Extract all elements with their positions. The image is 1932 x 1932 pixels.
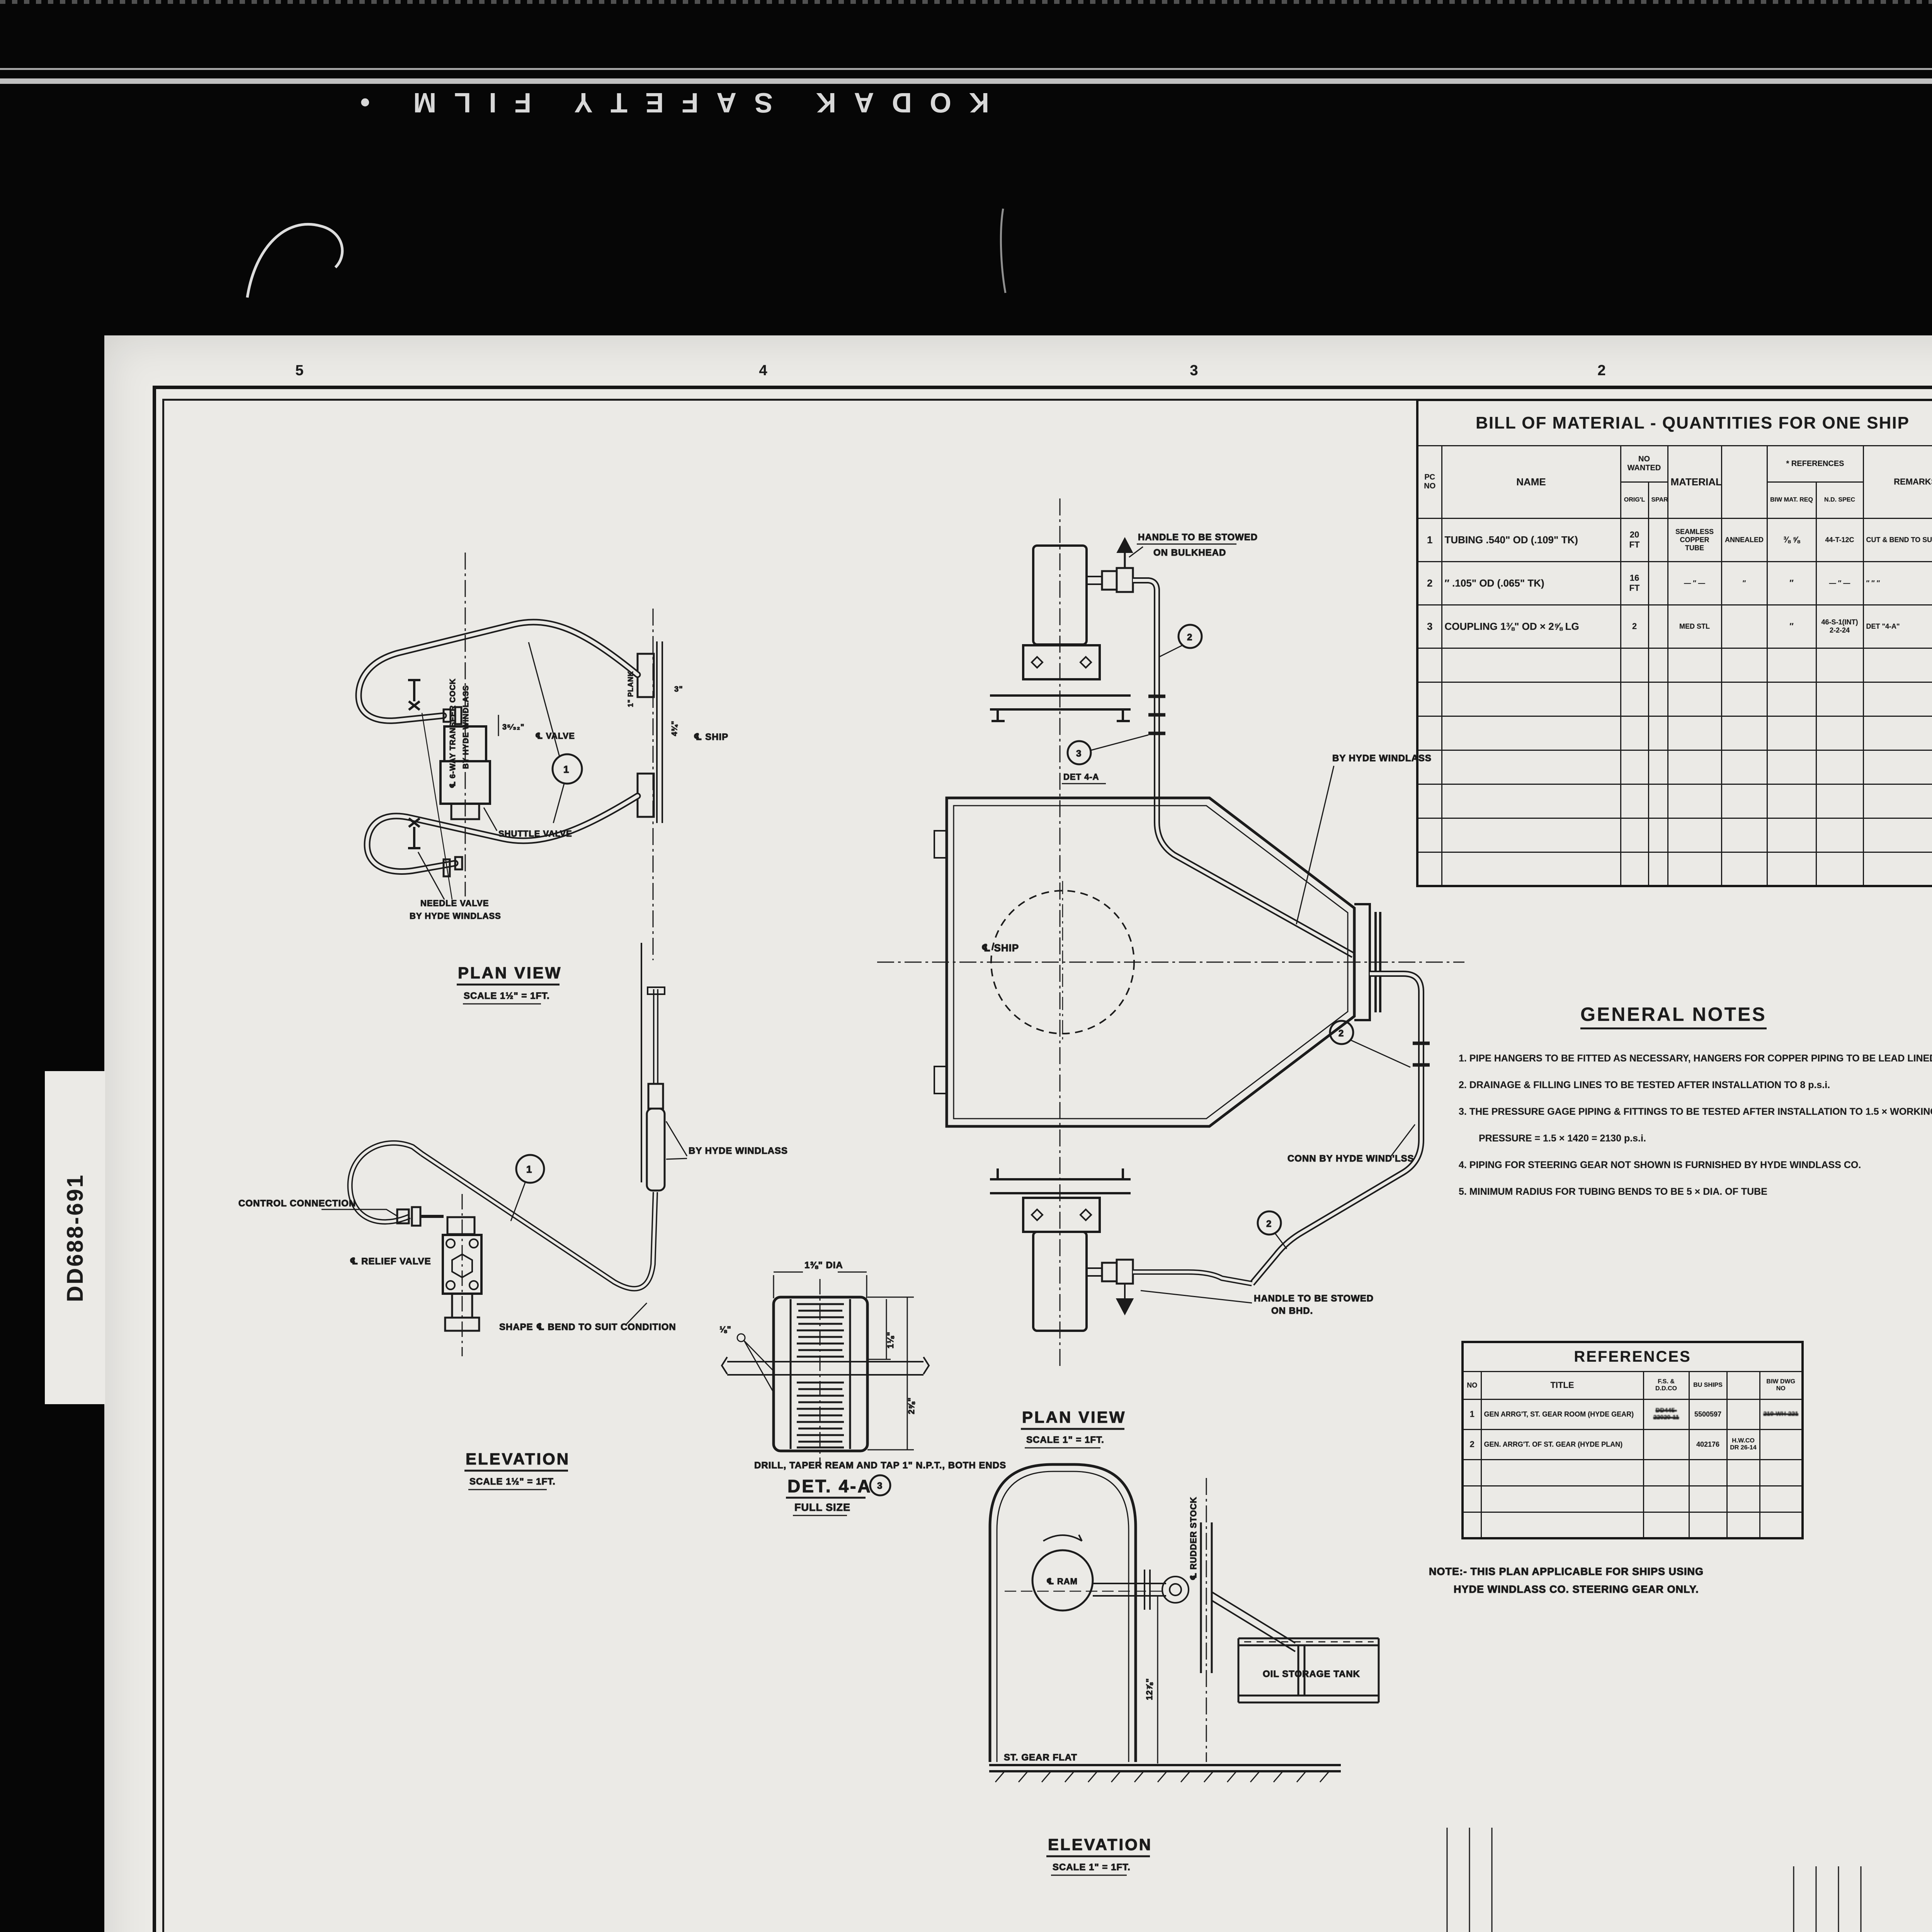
needle-valve-symbol	[408, 680, 420, 710]
ram-shaft	[1093, 1570, 1166, 1610]
conn-label: CONN BY HYDE WIND'LSS	[1287, 1153, 1414, 1164]
bottom-valve-body	[1117, 1260, 1133, 1284]
gage-tube-upper	[359, 622, 638, 721]
det-dim-eighth: ⅛"	[719, 1325, 731, 1334]
alteration-column-lines	[1403, 1828, 1861, 1932]
gage-tube-upper-core	[359, 622, 638, 721]
relief-valve-top	[447, 1217, 474, 1234]
gage-bulb	[647, 1109, 665, 1190]
leader	[666, 1121, 687, 1156]
valve-tube	[1133, 1272, 1252, 1284]
oil-tank-label: OIL STORAGE TANK	[1263, 1669, 1360, 1679]
transfer-cock-label2: BY HYDE WINDLASS	[462, 685, 470, 769]
control-fitting	[397, 1207, 420, 1226]
leader	[666, 1158, 687, 1159]
clamp-bolts	[1032, 657, 1091, 668]
needle-valve-label2: BY HYDE WINDLASS	[410, 911, 501, 921]
leader	[744, 1341, 773, 1391]
plan-view-center-title: PLAN VIEW	[1022, 1408, 1126, 1426]
callout-1: 1	[526, 1163, 532, 1175]
shuttle-valve-label: SHUTTLE VALVE	[498, 829, 572, 838]
leader	[1141, 1291, 1252, 1303]
ram-label: ℄ RAM	[1046, 1577, 1078, 1586]
upper-clamp	[1023, 645, 1100, 679]
callout-2: 2	[1266, 1219, 1272, 1229]
piping-drawing-layer: ℄ 6-WAY TRANSFER COCK BY HYDE WINDLASS 3…	[0, 0, 1932, 1932]
plan-view-center-scale: SCALE 1" = 1FT.	[1026, 1435, 1104, 1445]
relief-valve-label: ℄ RELIEF VALVE	[350, 1256, 431, 1267]
handle-label-bottom: HANDLE TO BE STOWED	[1254, 1293, 1374, 1304]
bolt-hole	[469, 1281, 478, 1289]
elevation-center-title: ELEVATION	[1048, 1835, 1152, 1854]
plan-view-scale: SCALE 1½" = 1FT.	[464, 991, 550, 1001]
applicability-note-2: HYDE WINDLASS CO. STEERING GEAR ONLY.	[1454, 1583, 1699, 1595]
leader	[1090, 735, 1148, 750]
pipe-break	[722, 1357, 929, 1374]
gear-housing-dome	[990, 1464, 1136, 1762]
leader	[626, 1303, 647, 1325]
lower-clamp	[1023, 1198, 1100, 1232]
film-scribble	[247, 224, 342, 298]
det-dim-2-5-8: 2⅝"	[906, 1397, 916, 1414]
dim-4-3-4: 4¾"	[670, 721, 679, 736]
valve-handle	[1117, 1284, 1133, 1314]
ship-centerline-label: ℄ SHIP	[694, 732, 728, 742]
film-scribble	[1001, 209, 1005, 293]
callout-1: 1	[563, 764, 569, 775]
top-valve-body	[1102, 571, 1117, 590]
link-joint-pin	[1170, 1584, 1181, 1595]
clamp-bolts	[1032, 1209, 1091, 1220]
center-tube-upper	[1133, 580, 1353, 955]
diagonal-tube	[422, 1154, 655, 1289]
handle-label-1: HANDLE TO BE STOWED	[1138, 532, 1258, 543]
leader	[1391, 1124, 1415, 1156]
dome-inner-line	[997, 1471, 1129, 1762]
elevation-scale: SCALE 1½" = 1FT.	[469, 1476, 556, 1487]
center-tube-upper-core	[1133, 580, 1353, 955]
callout-2: 2	[1187, 632, 1192, 643]
leader	[1296, 766, 1334, 924]
rotation-arrow	[1043, 1535, 1082, 1541]
det-drill-note: DRILL, TAPER REAM AND TAP 1" N.P.T., BOT…	[754, 1460, 1006, 1471]
leader	[1351, 1040, 1410, 1067]
det-dia-dim: 1⅜" DIA	[804, 1260, 843, 1270]
plank-label: 1" PLANK	[627, 671, 634, 707]
housing-tab	[934, 831, 947, 858]
needle-valve-label: NEEDLE VALVE	[420, 898, 489, 908]
bottom-valve-body	[1102, 1263, 1117, 1281]
dim-3-5-32: 3⁵⁄₃₂"	[502, 723, 524, 731]
plan-view-title: PLAN VIEW	[458, 964, 562, 982]
det-full-size: FULL SIZE	[794, 1502, 850, 1513]
valve-handle	[1117, 538, 1133, 553]
elevation-center-scale: SCALE 1" = 1FT.	[1053, 1862, 1131, 1872]
by-hyde-label: BY HYDE WINDLASS	[689, 1146, 788, 1156]
dim-3: 3"	[674, 685, 683, 694]
callout-3: 3	[877, 1481, 883, 1491]
control-connection-label: CONTROL CONNECTION	[238, 1198, 356, 1209]
valve-stem	[1087, 1268, 1102, 1276]
dim-12-7-8: 12⅞"	[1145, 1678, 1154, 1700]
pipe-coupling	[648, 1084, 663, 1109]
det-4a-ref: DET 4-A	[1063, 772, 1099, 782]
bolt-hole	[469, 1239, 478, 1248]
top-valve-body	[1117, 568, 1133, 592]
handle-label-bottom2: ON BHD.	[1271, 1306, 1313, 1316]
bolt-hole	[446, 1239, 455, 1248]
det-dim-1-1-8: 1⅛"	[886, 1332, 895, 1349]
shape-bend-label: SHAPE ℄ BEND TO SUIT CONDITION	[499, 1322, 676, 1332]
elevation-title: ELEVATION	[466, 1450, 570, 1468]
applicability-note-1: NOTE:- THIS PLAN APPLICABLE FOR SHIPS US…	[1429, 1566, 1704, 1577]
ship-centerline-label: ℄ SHIP	[981, 942, 1019, 954]
leader	[484, 808, 497, 831]
rudder-stock-label: ℄ RUDDER STOCK	[1189, 1497, 1198, 1580]
link-joint	[1162, 1577, 1189, 1603]
leader	[553, 784, 564, 823]
det-title: DET. 4-A	[787, 1476, 872, 1496]
gear-flat-label: ST. GEAR FLAT	[1004, 1752, 1077, 1763]
housing-tab	[934, 1066, 947, 1094]
by-hyde-label-center: BY HYDE WINDLASS	[1332, 753, 1432, 764]
tank-link	[1212, 1592, 1295, 1651]
leader-dot	[737, 1334, 745, 1342]
callout-3: 3	[1076, 748, 1082, 759]
bolt-hole	[446, 1281, 455, 1289]
microfilm-scan: KODAK SAFETY FILM • DD688-691 5 4 3 2 1 …	[0, 0, 1932, 1932]
leader	[1159, 645, 1182, 657]
valve-stem	[1087, 577, 1102, 584]
ground-hatch	[995, 1771, 1329, 1782]
callout-2: 2	[1338, 1028, 1344, 1039]
gear-flat-line	[989, 1765, 1341, 1771]
leader	[418, 852, 444, 900]
transfer-cock-label: ℄ 6-WAY TRANSFER COCK	[449, 678, 457, 788]
handle-label-2: ON BULKHEAD	[1153, 548, 1226, 558]
